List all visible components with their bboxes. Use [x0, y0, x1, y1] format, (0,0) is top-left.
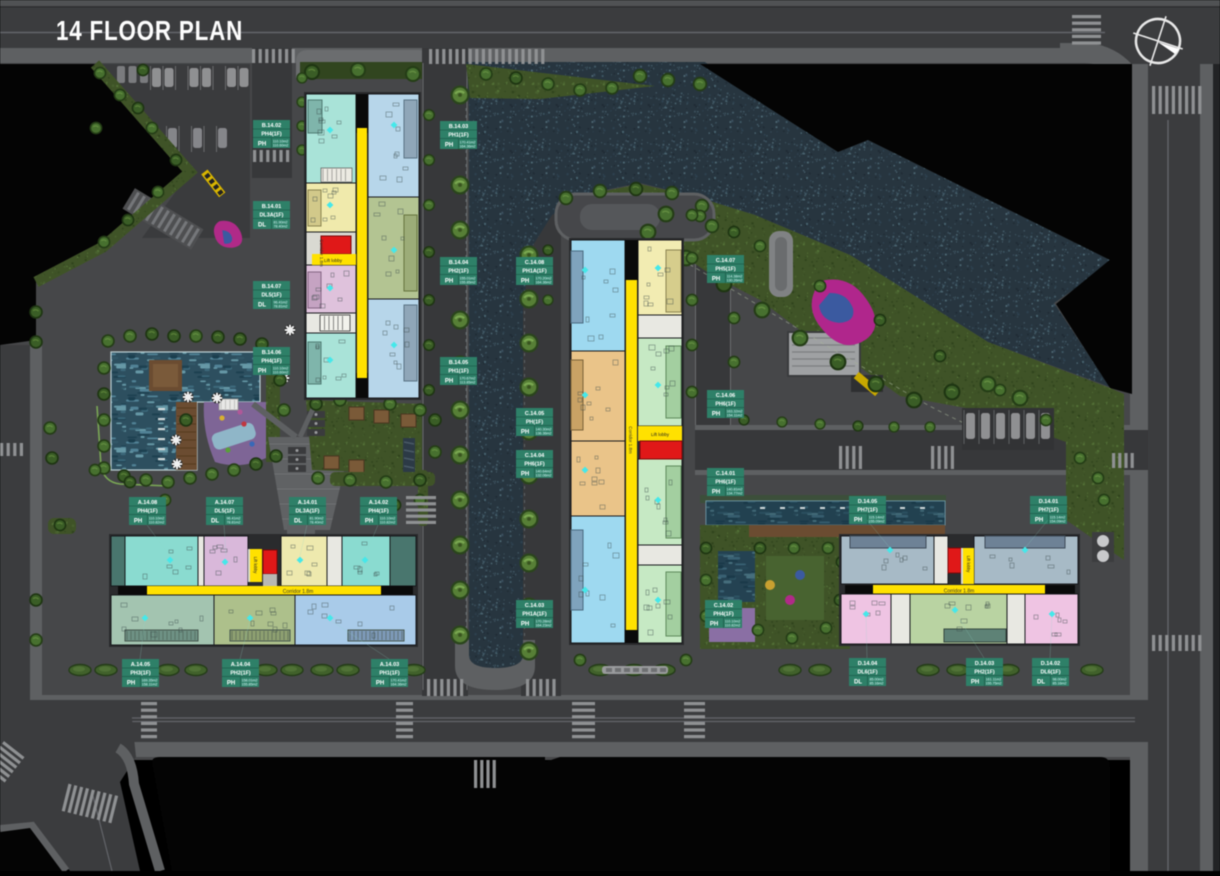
- svg-text:PH: PH: [365, 519, 373, 525]
- svg-text:PH: PH: [712, 412, 720, 418]
- svg-text:A.14.05: A.14.05: [131, 662, 151, 668]
- svg-text:PH3(1F): PH3(1F): [130, 671, 151, 677]
- svg-text:14 FLOOR PLAN: 14 FLOOR PLAN: [56, 16, 243, 47]
- svg-text:Corridor 1.8m: Corridor 1.8m: [319, 239, 324, 267]
- svg-text:DL: DL: [258, 223, 266, 229]
- svg-text:Corridor 1.8m: Corridor 1.8m: [283, 589, 314, 595]
- svg-text:A.14.04: A.14.04: [231, 662, 251, 668]
- svg-text:110.82m2: 110.82m2: [149, 521, 165, 525]
- svg-text:PH: PH: [134, 519, 142, 525]
- svg-text:154.09m2: 154.09m2: [1050, 520, 1066, 524]
- svg-text:164.23m2: 164.23m2: [536, 624, 552, 628]
- svg-text:130.26m2: 130.26m2: [727, 279, 743, 283]
- svg-text:B.14.01: B.14.01: [262, 204, 282, 210]
- svg-text:78.40m2: 78.40m2: [310, 521, 324, 525]
- svg-text:PH1(1F): PH1(1F): [379, 671, 400, 677]
- svg-text:C.14.07: C.14.07: [716, 258, 736, 264]
- svg-text:PH: PH: [445, 279, 453, 285]
- svg-text:PH1A(1F): PH1A(1F): [522, 612, 546, 618]
- svg-text:PH: PH: [521, 472, 529, 478]
- svg-text:PH: PH: [854, 518, 862, 524]
- svg-text:A.14.02: A.14.02: [369, 500, 389, 506]
- svg-text:DL6(1F): DL6(1F): [1040, 670, 1060, 676]
- svg-text:C.14.02: C.14.02: [714, 603, 734, 609]
- svg-text:C.14.06: C.14.06: [716, 393, 736, 399]
- svg-text:Corridor 1.8m: Corridor 1.8m: [628, 426, 633, 454]
- svg-text:Lift lobby: Lift lobby: [966, 556, 971, 574]
- svg-text:DL: DL: [854, 680, 862, 686]
- svg-text:164.36m2: 164.36m2: [391, 683, 407, 687]
- svg-text:PH: PH: [445, 143, 453, 149]
- svg-text:PH1(1F): PH1(1F): [448, 369, 469, 375]
- svg-text:C.14.05: C.14.05: [525, 411, 545, 417]
- svg-text:PH2(1F): PH2(1F): [448, 269, 469, 275]
- svg-text:PH4(1F): PH4(1F): [261, 359, 282, 365]
- svg-text:D.14.03: D.14.03: [975, 661, 995, 667]
- svg-text:A.14.03: A.14.03: [380, 662, 400, 668]
- svg-text:PH: PH: [1035, 518, 1043, 524]
- svg-text:PH6(1F): PH6(1F): [715, 402, 736, 408]
- svg-text:B.14.05: B.14.05: [449, 360, 469, 366]
- svg-text:PH7(1F): PH7(1F): [1038, 508, 1059, 514]
- svg-text:164.36m2: 164.36m2: [460, 145, 476, 149]
- svg-text:155.75m2: 155.75m2: [986, 682, 1002, 686]
- svg-text:DL3A(1F): DL3A(1F): [296, 509, 320, 515]
- svg-text:110.82m2: 110.82m2: [380, 521, 396, 525]
- svg-text:C.14.03: C.14.03: [525, 603, 545, 609]
- svg-text:110.60m2: 110.60m2: [273, 144, 289, 148]
- svg-text:PH: PH: [227, 681, 235, 687]
- svg-text:PH7(1F): PH7(1F): [857, 508, 878, 514]
- svg-text:B.14.07: B.14.07: [262, 284, 282, 290]
- svg-text:PH: PH: [712, 490, 720, 496]
- svg-text:85.16m2: 85.16m2: [1053, 682, 1067, 686]
- svg-text:164.36m2: 164.36m2: [536, 281, 552, 285]
- svg-text:78.40m2: 78.40m2: [274, 225, 288, 229]
- svg-text:D.14.05: D.14.05: [858, 499, 878, 505]
- svg-text:C.14.08: C.14.08: [525, 260, 545, 266]
- svg-text:132.06m2: 132.06m2: [536, 474, 552, 478]
- svg-text:D.14.01: D.14.01: [1039, 499, 1059, 505]
- svg-text:134.77m2: 134.77m2: [727, 492, 743, 496]
- svg-text:PH: PH: [258, 142, 266, 148]
- svg-text:PH4(1F): PH4(1F): [261, 132, 282, 138]
- svg-text:PH: PH: [710, 622, 718, 628]
- svg-text:PH6(1F): PH6(1F): [524, 462, 545, 468]
- svg-text:DL: DL: [294, 519, 302, 525]
- svg-text:PH: PH: [376, 681, 384, 687]
- svg-text:158.11m2: 158.11m2: [142, 683, 158, 687]
- svg-text:C.14.01: C.14.01: [716, 471, 736, 477]
- svg-text:113.85m2: 113.85m2: [460, 381, 476, 385]
- svg-text:PH: PH: [521, 622, 529, 628]
- svg-text:Lift lobby: Lift lobby: [324, 258, 343, 263]
- svg-text:PH4(1F): PH4(1F): [713, 612, 734, 618]
- svg-text:155.85m2: 155.85m2: [242, 683, 258, 687]
- svg-text:B.14.06: B.14.06: [262, 350, 282, 356]
- svg-text:Lift lobby: Lift lobby: [253, 557, 258, 575]
- svg-text:PH2(1F): PH2(1F): [230, 671, 251, 677]
- svg-text:PH: PH: [521, 279, 529, 285]
- svg-text:PH4(1F): PH4(1F): [137, 509, 158, 515]
- svg-text:A.14.01: A.14.01: [298, 500, 318, 506]
- svg-text:Lift lobby: Lift lobby: [651, 432, 670, 437]
- svg-text:PH6(1F): PH6(1F): [715, 480, 736, 486]
- svg-text:110.60m2: 110.60m2: [273, 371, 289, 375]
- svg-text:B.14.03: B.14.03: [449, 124, 469, 130]
- svg-text:78.81m2: 78.81m2: [227, 521, 241, 525]
- svg-text:DL: DL: [258, 303, 266, 309]
- svg-text:PH1(1F): PH1(1F): [448, 133, 469, 139]
- svg-text:PH2(1F): PH2(1F): [974, 670, 995, 676]
- svg-text:B.14.02: B.14.02: [262, 123, 282, 129]
- svg-text:DL5(1F): DL5(1F): [261, 293, 281, 299]
- svg-text:136.36m2: 136.36m2: [536, 432, 552, 436]
- svg-text:DL5(1F): DL5(1F): [214, 509, 234, 515]
- svg-text:110.82m2: 110.82m2: [725, 624, 741, 628]
- svg-text:A.14.07: A.14.07: [215, 500, 235, 506]
- svg-text:DL: DL: [211, 519, 219, 525]
- svg-text:PH1A(1F): PH1A(1F): [522, 269, 546, 275]
- svg-text:PH(1F): PH(1F): [526, 420, 544, 426]
- svg-text:78.81m2: 78.81m2: [274, 305, 288, 309]
- svg-text:PH: PH: [258, 369, 266, 375]
- svg-text:PH5(1F): PH5(1F): [715, 267, 736, 273]
- svg-text:PH: PH: [712, 277, 720, 283]
- svg-text:PH: PH: [445, 379, 453, 385]
- svg-text:C.14.04: C.14.04: [525, 453, 545, 459]
- svg-text:DL3A(1F): DL3A(1F): [260, 213, 284, 219]
- svg-text:155.09m2: 155.09m2: [869, 520, 885, 524]
- svg-text:B.14.04: B.14.04: [449, 260, 469, 266]
- svg-text:D.14.02: D.14.02: [1041, 661, 1061, 667]
- svg-text:155.85m2: 155.85m2: [460, 281, 476, 285]
- svg-text:PH: PH: [971, 680, 979, 686]
- svg-text:DL6(1F): DL6(1F): [857, 670, 877, 676]
- svg-text:85.16m2: 85.16m2: [870, 682, 884, 686]
- svg-text:154.11m2: 154.11m2: [727, 414, 743, 418]
- svg-text:PH: PH: [127, 681, 135, 687]
- svg-text:DL: DL: [1037, 680, 1045, 686]
- svg-text:D.14.04: D.14.04: [858, 661, 878, 667]
- svg-text:A.14.08: A.14.08: [138, 500, 158, 506]
- svg-text:PH4(1F): PH4(1F): [368, 509, 389, 515]
- svg-text:PH: PH: [521, 430, 529, 436]
